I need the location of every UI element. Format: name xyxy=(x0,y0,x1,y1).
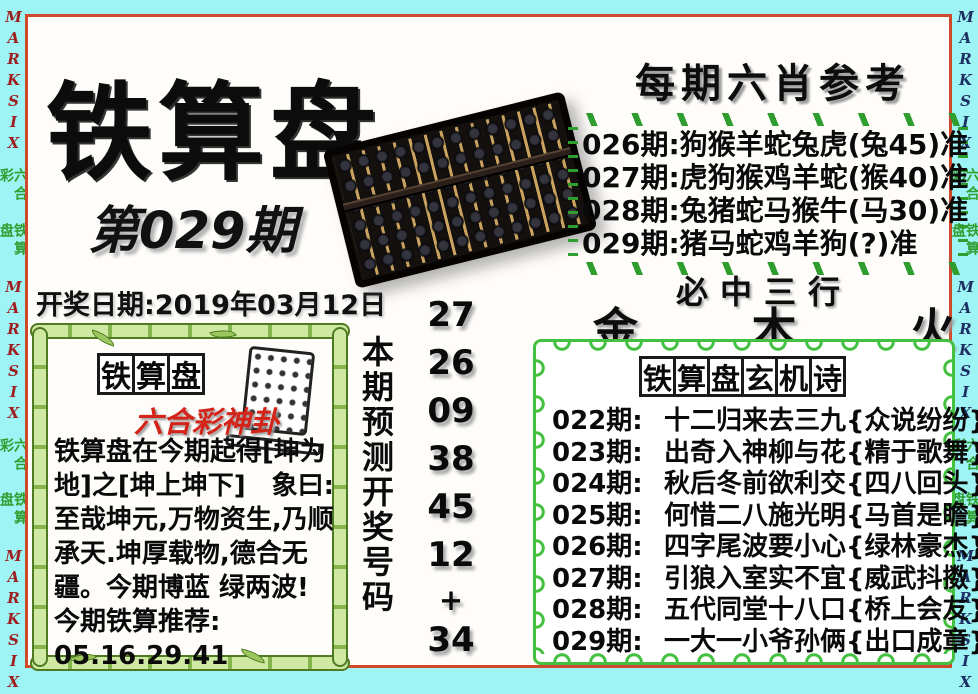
abacus-frame-icon xyxy=(323,91,598,289)
marksix-text: MARKSIX xyxy=(6,278,21,425)
poem-hint: {众说纷纷} xyxy=(846,406,978,438)
poem-row: 023期: 出奇入神柳与花 {精于歌舞} xyxy=(552,438,938,470)
prediction-number: 34 xyxy=(427,620,474,668)
prediction-number: 09 xyxy=(427,391,474,439)
poem-row: 029期: 一大一小爷孙俩 {出口成章} xyxy=(552,627,938,659)
title-char: 诗 xyxy=(809,356,846,397)
poem-period: 022期: xyxy=(552,406,642,438)
poem-text: 一大一小爷孙俩 xyxy=(642,627,846,659)
poem-hint: {桥上会友} xyxy=(846,595,978,627)
poem-row: 027期: 引狼入室实不宜 {威武抖擞} xyxy=(552,564,938,596)
mystery-poem-title: 铁 算 盘 玄 机 诗 xyxy=(536,356,952,397)
tiesuanpan-text: 铁算盘 xyxy=(0,223,26,265)
bamboo-border-right xyxy=(332,327,348,667)
poem-row: 028期: 五代同堂十八口 {桥上会友} xyxy=(552,595,938,627)
poem-row: 026期: 四字尾波要小心 {绿林豪杰} xyxy=(552,532,938,564)
title-char: 铁 xyxy=(97,353,135,395)
poem-period: 027期: xyxy=(552,564,642,596)
poem-text: 何惜二八施光明 xyxy=(642,501,846,533)
prediction-number: 26 xyxy=(427,343,474,391)
poem-text: 五代同堂十八口 xyxy=(642,595,846,627)
oracle-line: 铁算盘在今期起得[坤为 xyxy=(54,435,330,469)
six-xiao-row: 027期:虎狗猴鸡羊蛇(猴40)准 xyxy=(582,161,958,194)
abacus-photo xyxy=(328,89,596,301)
oracle-box: 铁 算 盘 六合彩神卦 铁算盘在今期起得[坤为 地]之[坤上坤下] 象曰: 至哉… xyxy=(30,323,350,671)
bamboo-border-top xyxy=(30,323,350,339)
title-char: 盘 xyxy=(167,353,205,395)
oracle-line: 疆。今期博蓝 绿两波! xyxy=(54,571,330,605)
oracle-line: 今期铁算推荐: xyxy=(54,605,330,639)
oracle-title: 铁 算 盘 xyxy=(100,353,205,395)
poem-hint: {精于歌舞} xyxy=(846,438,978,470)
prediction-number: 27 xyxy=(427,295,474,343)
six-xiao-rows: 026期:狗猴羊蛇兔虎(兔45)准 027期:虎狗猴鸡羊蛇(猴40)准 028期… xyxy=(582,128,958,260)
mystery-poem-rows: 022期: 十二归来去三九 {众说纷纷} 023期: 出奇入神柳与花 {精于歌舞… xyxy=(552,406,938,658)
six-xiao-box: 026期:狗猴羊蛇兔虎(兔45)准 027期:虎狗猴鸡羊蛇(猴40)准 028期… xyxy=(568,113,968,275)
title-char: 算 xyxy=(673,356,710,397)
prediction-number: 45 xyxy=(427,487,474,535)
poem-hint: {四八回头} xyxy=(846,469,978,501)
issue-number: 第029期 xyxy=(88,189,296,263)
marksix-text: MARKSIX xyxy=(958,278,973,425)
poem-row: 024期: 秋后冬前欲利交 {四八回头} xyxy=(552,469,938,501)
poem-hint: {马首是瞻} xyxy=(846,501,978,533)
poem-text: 十二归来去三九 xyxy=(642,406,846,438)
dashed-border-top xyxy=(574,113,962,126)
marksix-text: MARKSIX xyxy=(6,8,21,155)
poem-text: 秋后冬前欲利交 xyxy=(642,469,846,501)
title-char: 铁 xyxy=(639,356,676,397)
oracle-line: 05.16.29.41 xyxy=(54,639,330,673)
main-panel: 铁算盘 第029期 开奖日期:2019年03月12日 每期六肖参考 026期:狗… xyxy=(25,14,952,668)
poem-period: 024期: xyxy=(552,469,642,501)
poem-period: 028期: xyxy=(552,595,642,627)
title-char: 机 xyxy=(775,356,812,397)
poem-row: 025期: 何惜二八施光明 {马首是瞻} xyxy=(552,501,938,533)
title-char: 算 xyxy=(132,353,170,395)
poem-hint: {出口成章} xyxy=(846,627,978,659)
oracle-body: 铁算盘在今期起得[坤为 地]之[坤上坤下] 象曰: 至哉坤元,万物资生,乃顺 承… xyxy=(54,435,330,673)
liuhecai-text: 六合彩 xyxy=(0,168,26,210)
poem-text: 引狼入室实不宜 xyxy=(642,564,846,596)
poem-text: 四字尾波要小心 xyxy=(642,532,846,564)
marksix-text: MARKSIX xyxy=(6,547,21,694)
prediction-numbers: 27 26 09 38 45 12 + 34 xyxy=(413,295,489,668)
bamboo-border-left xyxy=(32,327,48,667)
mystery-poem-box: 铁 算 盘 玄 机 诗 022期: 十二归来去三九 {众说纷纷} 023期: 出… xyxy=(533,339,955,665)
oracle-line: 承天.坤厚载物,德合无 xyxy=(54,537,330,571)
six-xiao-row: 028期:兔猪蛇马猴牛(马30)准 xyxy=(582,194,958,227)
title-char: 盘 xyxy=(707,356,744,397)
poem-hint: {威武抖擞} xyxy=(846,564,978,596)
prediction-number: 38 xyxy=(427,439,474,487)
liuhecai-text: 六合彩 xyxy=(0,438,26,480)
six-xiao-row: 029期:猪马蛇鸡羊狗(?)准 xyxy=(582,227,958,260)
six-xiao-row: 026期:狗猴羊蛇兔虎(兔45)准 xyxy=(582,128,958,161)
left-edge-strip: MARKSIX 六合彩 铁算盘 MARKSIX 六合彩 铁算盘 MARKSIX xyxy=(0,0,26,694)
title-char: 玄 xyxy=(741,356,778,397)
poem-period: 023期: xyxy=(552,438,642,470)
poem-period: 026期: xyxy=(552,532,642,564)
poem-text: 出奇入神柳与花 xyxy=(642,438,846,470)
six-xiao-title: 每期六肖参考 xyxy=(573,51,973,109)
poem-row: 022期: 十二归来去三九 {众说纷纷} xyxy=(552,406,938,438)
oracle-line: 地]之[坤上坤下] 象曰: xyxy=(54,469,330,503)
tiesuanpan-text: 铁算盘 xyxy=(0,492,26,534)
poem-period: 029期: xyxy=(552,627,642,659)
prediction-vertical-label: 本期预测开奖号码 xyxy=(353,335,399,635)
oracle-line: 至哉坤元,万物资生,乃顺 xyxy=(54,503,330,537)
poem-period: 025期: xyxy=(552,501,642,533)
poem-hint: {绿林豪杰} xyxy=(846,532,978,564)
plus-sign: + xyxy=(439,583,463,620)
scallop-border-top xyxy=(544,342,944,354)
prediction-number: 12 xyxy=(427,535,474,583)
dashed-border-left xyxy=(568,127,578,261)
